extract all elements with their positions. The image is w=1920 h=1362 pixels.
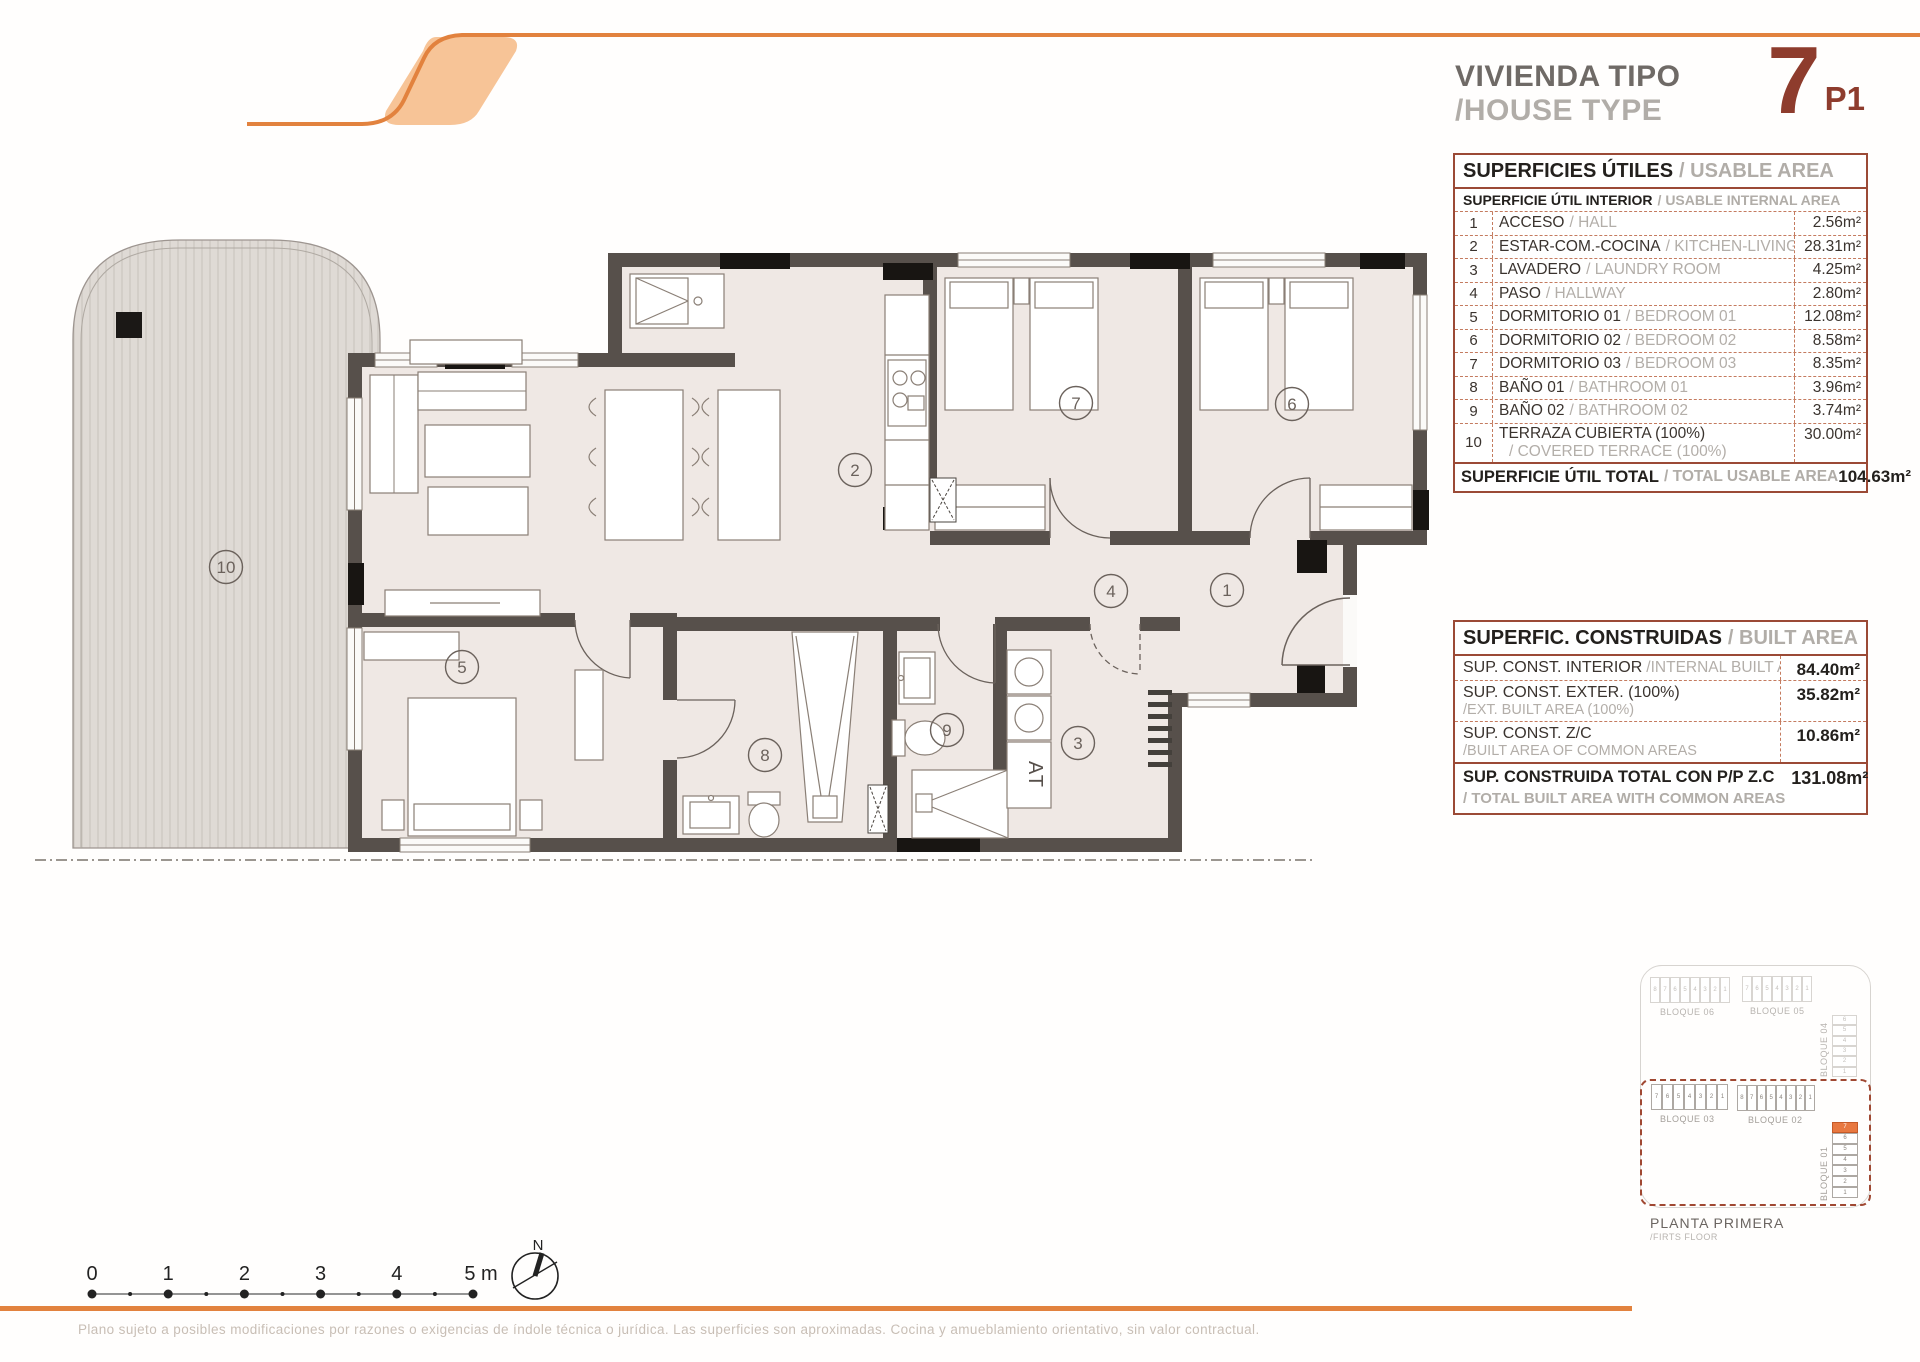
built-total-row: SUP. CONSTRUIDA TOTAL CON P/P Z.C / TOTA… bbox=[1455, 762, 1866, 813]
usable-row: 2ESTAR-COM.-COCINA/ KITCHEN-LIVING28.31m… bbox=[1455, 236, 1866, 260]
built-total-es: SUP. CONSTRUIDA TOTAL CON P/P Z.C bbox=[1463, 768, 1785, 787]
scale-tick-label: 1 bbox=[163, 1263, 174, 1285]
site-unit-cell: 4 bbox=[1690, 977, 1700, 1003]
site-unit-cell: 6 bbox=[1662, 1084, 1673, 1110]
site-block-label: BLOQUE 01 bbox=[1819, 1125, 1829, 1201]
site-unit-cell: 2 bbox=[1796, 1085, 1806, 1111]
room-name-en: / HALL bbox=[1569, 214, 1616, 232]
site-unit-cell: 3 bbox=[1700, 977, 1710, 1003]
site-block-label: BLOQUE 06 bbox=[1660, 1007, 1715, 1017]
site-unit-cell: 1 bbox=[1717, 1084, 1728, 1110]
built-total-value: 131.08m² bbox=[1791, 768, 1868, 807]
room-number-cell: 6 bbox=[1455, 330, 1493, 353]
type-number: 7 bbox=[1767, 42, 1820, 120]
title-es: VIVIENDA TIPO bbox=[1455, 60, 1680, 94]
built-name-es: SUP. CONST. EXTER. (100%) bbox=[1463, 684, 1772, 702]
site-unit-cell: 1 bbox=[1805, 1085, 1815, 1111]
room-name-es: DORMITORIO 03 bbox=[1499, 355, 1621, 373]
scale-minor-tick bbox=[128, 1292, 132, 1296]
room-name-es: BAÑO 01 bbox=[1499, 379, 1564, 397]
usable-title-es: SUPERFICIES ÚTILES bbox=[1463, 160, 1673, 183]
site-unit-cell: 3 bbox=[1832, 1046, 1857, 1056]
usable-row: 6DORMITORIO 02/ BEDROOM 028.58m² bbox=[1455, 330, 1866, 354]
built-row: SUP. CONST. INTERIOR/INTERNAL BUILT AREA… bbox=[1455, 656, 1866, 681]
room-area-cell: 28.31m² bbox=[1794, 236, 1866, 259]
site-unit-cell: 7 bbox=[1660, 977, 1670, 1003]
scale-major-tick bbox=[392, 1290, 401, 1299]
site-unit-cell: 3 bbox=[1832, 1165, 1858, 1176]
room-name-cell: PASO/ HALLWAY bbox=[1493, 283, 1794, 306]
room-circle-label: 3 bbox=[1073, 734, 1082, 753]
room-number-cell: 5 bbox=[1455, 306, 1493, 329]
room-name-cell: DORMITORIO 02/ BEDROOM 02 bbox=[1493, 330, 1794, 353]
room-name-cell: BAÑO 01/ BATHROOM 01 bbox=[1493, 377, 1794, 400]
room-number-cell: 10 bbox=[1455, 424, 1493, 462]
site-caption-es: PLANTA PRIMERA bbox=[1650, 1215, 1784, 1231]
site-unit-cell: 1 bbox=[1720, 977, 1730, 1003]
type-floor: P1 bbox=[1825, 80, 1865, 118]
room-number-cell: 1 bbox=[1455, 212, 1493, 235]
usable-row: 7DORMITORIO 03/ BEDROOM 038.35m² bbox=[1455, 353, 1866, 377]
at-closet-label: AT bbox=[1024, 761, 1046, 789]
built-row: SUP. CONST. Z/C/BUILT AREA OF COMMON ARE… bbox=[1455, 722, 1866, 762]
site-unit-cell: 3 bbox=[1786, 1085, 1796, 1111]
site-unit-cell: 3 bbox=[1782, 976, 1792, 1002]
scale-tick-label: 0 bbox=[86, 1263, 97, 1285]
site-unit-cell: 2 bbox=[1832, 1056, 1857, 1066]
usable-row: 5DORMITORIO 01/ BEDROOM 0112.08m² bbox=[1455, 306, 1866, 330]
site-block-b05: 7654321 bbox=[1742, 976, 1812, 1002]
built-name-cell: SUP. CONST. INTERIOR/INTERNAL BUILT AREA bbox=[1455, 656, 1780, 680]
scale-major-tick bbox=[240, 1290, 249, 1299]
plan-sheet: VIVIENDA TIPO /HOUSE TYPE 7 P1 SUPERFICI… bbox=[0, 0, 1920, 1362]
room-name-es: DORMITORIO 01 bbox=[1499, 308, 1621, 326]
site-unit-cell: 5 bbox=[1766, 1085, 1776, 1111]
room-name-cell: TERRAZA CUBIERTA (100%)/ COVERED TERRACE… bbox=[1493, 424, 1794, 462]
room-name-en: / HALLWAY bbox=[1546, 285, 1626, 303]
room-number-cell: 9 bbox=[1455, 400, 1493, 423]
room-name-en: / LAUNDRY ROOM bbox=[1586, 261, 1721, 279]
scale-major-tick bbox=[164, 1290, 173, 1299]
built-name-cell: SUP. CONST. EXTER. (100%)/EXT. BUILT ARE… bbox=[1455, 681, 1780, 721]
built-area-cell: 84.40m² bbox=[1780, 656, 1866, 680]
usable-row: 3LAVADERO/ LAUNDRY ROOM4.25m² bbox=[1455, 259, 1866, 283]
scale-tick-label: 3 bbox=[315, 1263, 326, 1285]
room-circle-label: 2 bbox=[850, 461, 859, 480]
built-total-en: / TOTAL BUILT AREA WITH COMMON AREAS bbox=[1463, 790, 1785, 807]
site-unit-cell: 3 bbox=[1695, 1084, 1706, 1110]
site-unit-cell: 7 bbox=[1747, 1085, 1757, 1111]
site-unit-cell: 6 bbox=[1757, 1085, 1767, 1111]
site-unit-cell: 4 bbox=[1684, 1084, 1695, 1110]
room-area-cell: 2.56m² bbox=[1794, 212, 1866, 235]
site-block-label: BLOQUE 04 bbox=[1819, 1015, 1829, 1077]
room-area-cell: 12.08m² bbox=[1794, 306, 1866, 329]
room-circle-label: 10 bbox=[217, 558, 236, 577]
room-name-cell: DORMITORIO 03/ BEDROOM 03 bbox=[1493, 353, 1794, 376]
site-unit-cell: 2 bbox=[1832, 1176, 1858, 1187]
logo-parallelogram bbox=[385, 37, 517, 125]
usable-area-table: SUPERFICIES ÚTILES / USABLE AREA SUPERFI… bbox=[1453, 153, 1868, 493]
terrace-deck bbox=[73, 240, 380, 848]
room-circle-label: 5 bbox=[457, 658, 466, 677]
site-unit-cell: 6 bbox=[1832, 1015, 1857, 1025]
built-name-es: SUP. CONST. Z/C bbox=[1463, 725, 1772, 743]
site-block-b06: 87654321 bbox=[1650, 977, 1730, 1003]
room-area-cell: 30.00m² bbox=[1794, 424, 1866, 462]
room-number-cell: 7 bbox=[1455, 353, 1493, 376]
room-name-cell: LAVADERO/ LAUNDRY ROOM bbox=[1493, 259, 1794, 282]
room-name-en: / KITCHEN-LIVING bbox=[1666, 238, 1794, 256]
site-block-label: BLOQUE 02 bbox=[1748, 1115, 1803, 1125]
room-number-cell: 4 bbox=[1455, 283, 1493, 306]
room-circle-label: 9 bbox=[942, 721, 951, 740]
room-circle-label: 8 bbox=[760, 746, 769, 765]
usable-total-en: / TOTAL USABLE AREA bbox=[1664, 468, 1838, 486]
room-name-en: / BATHROOM 02 bbox=[1569, 402, 1688, 420]
built-area-cell: 10.86m² bbox=[1780, 722, 1866, 762]
room-circle-label: 4 bbox=[1106, 582, 1115, 601]
bottom-accent-rule bbox=[0, 1306, 1632, 1311]
site-unit-cell: 7 bbox=[1742, 976, 1752, 1002]
scale-minor-tick bbox=[204, 1292, 208, 1296]
site-block-label: BLOQUE 03 bbox=[1660, 1114, 1715, 1124]
room-name-en: / BEDROOM 02 bbox=[1626, 332, 1736, 350]
built-title-en: / BUILT AREA bbox=[1728, 627, 1858, 650]
site-block-b02: 87654321 bbox=[1737, 1085, 1815, 1111]
site-unit-cell: 8 bbox=[1650, 977, 1660, 1003]
usable-total-value: 104.63m² bbox=[1838, 467, 1911, 487]
scale-tick-label: 5 m bbox=[464, 1263, 497, 1285]
built-area-cell: 35.82m² bbox=[1780, 681, 1866, 721]
usable-table-subheader: SUPERFICIE ÚTIL INTERIOR / USABLE INTERN… bbox=[1455, 189, 1866, 212]
site-unit-cell: 5 bbox=[1680, 977, 1690, 1003]
site-unit-cell: 2 bbox=[1706, 1084, 1717, 1110]
site-unit-cell: 5 bbox=[1832, 1025, 1857, 1035]
room-area-cell: 2.80m² bbox=[1794, 283, 1866, 306]
room-area-cell: 4.25m² bbox=[1794, 259, 1866, 282]
north-label: N bbox=[533, 1238, 544, 1254]
site-block-b03: 7654321 bbox=[1651, 1084, 1728, 1110]
usable-row: 1ACCESO/ HALL2.56m² bbox=[1455, 212, 1866, 236]
site-block-b01: 7654321 bbox=[1832, 1122, 1858, 1198]
built-name-en: /BUILT AREA OF COMMON AREAS bbox=[1463, 743, 1772, 759]
room-name-es: ACCESO bbox=[1499, 214, 1564, 232]
site-unit-cell: 4 bbox=[1776, 1085, 1786, 1111]
site-block-b04: 654321 bbox=[1832, 1015, 1857, 1077]
title-block: VIVIENDA TIPO /HOUSE TYPE 7 P1 bbox=[1455, 42, 1865, 128]
built-area-table: SUPERFIC. CONSTRUIDAS / BUILT AREA SUP. … bbox=[1453, 620, 1868, 815]
room-circle-label: 6 bbox=[1287, 395, 1296, 414]
terrace-column bbox=[116, 312, 142, 338]
room-number-cell: 3 bbox=[1455, 259, 1493, 282]
built-table-rows: SUP. CONST. INTERIOR/INTERNAL BUILT AREA… bbox=[1455, 656, 1866, 762]
site-unit-cell: 6 bbox=[1670, 977, 1680, 1003]
site-unit-cell: 1 bbox=[1802, 976, 1812, 1002]
scale-minor-tick bbox=[433, 1292, 437, 1296]
room-name-es: PASO bbox=[1499, 285, 1541, 303]
disclaimer-text: Plano sujeto a posibles modificaciones p… bbox=[78, 1322, 1278, 1337]
type-code: 7 P1 bbox=[1767, 42, 1865, 120]
room-number-cell: 2 bbox=[1455, 236, 1493, 259]
site-unit-cell: 7 bbox=[1832, 1122, 1858, 1133]
site-unit-cell: 4 bbox=[1832, 1155, 1858, 1166]
site-unit-cell: 1 bbox=[1832, 1067, 1857, 1077]
scale-bar: 012345 m bbox=[70, 1248, 550, 1312]
built-name-inline: SUP. CONST. INTERIOR/INTERNAL BUILT AREA bbox=[1463, 659, 1772, 677]
scale-major-tick bbox=[316, 1290, 325, 1299]
scale-tick-label: 2 bbox=[239, 1263, 250, 1285]
north-arrow: N bbox=[502, 1238, 576, 1312]
built-title-es: SUPERFIC. CONSTRUIDAS bbox=[1463, 627, 1722, 650]
scale-minor-tick bbox=[281, 1292, 285, 1296]
usable-table-header: SUPERFICIES ÚTILES / USABLE AREA bbox=[1455, 155, 1866, 189]
room-name-en: / BEDROOM 01 bbox=[1626, 308, 1736, 326]
usable-row: 10TERRAZA CUBIERTA (100%)/ COVERED TERRA… bbox=[1455, 424, 1866, 462]
usable-title-en: / USABLE AREA bbox=[1679, 160, 1834, 183]
scale-minor-tick bbox=[357, 1292, 361, 1296]
room-number-cell: 8 bbox=[1455, 377, 1493, 400]
room-circle-label: 7 bbox=[1071, 394, 1080, 413]
site-unit-cell: 6 bbox=[1752, 976, 1762, 1002]
room-area-cell: 3.96m² bbox=[1794, 377, 1866, 400]
site-unit-cell: 4 bbox=[1772, 976, 1782, 1002]
room-name-en: / BEDROOM 03 bbox=[1626, 355, 1736, 373]
usable-subtitle-en: / USABLE INTERNAL AREA bbox=[1658, 192, 1841, 208]
site-unit-cell: 6 bbox=[1832, 1133, 1858, 1144]
site-unit-cell: 5 bbox=[1673, 1084, 1684, 1110]
usable-row: 8BAÑO 01/ BATHROOM 013.96m² bbox=[1455, 377, 1866, 401]
room-circle-label: 1 bbox=[1222, 581, 1231, 600]
site-unit-cell: 2 bbox=[1792, 976, 1802, 1002]
usable-total-row: SUPERFICIE ÚTIL TOTAL / TOTAL USABLE ARE… bbox=[1455, 462, 1866, 491]
room-name-en: / COVERED TERRACE (100%) bbox=[1509, 443, 1727, 461]
site-unit-cell: 8 bbox=[1737, 1085, 1747, 1111]
usable-total-es: SUPERFICIE ÚTIL TOTAL bbox=[1461, 468, 1659, 487]
usable-subtitle-es: SUPERFICIE ÚTIL INTERIOR bbox=[1463, 192, 1653, 208]
room-name-es: LAVADERO bbox=[1499, 261, 1581, 279]
built-name-en: /EXT. BUILT AREA (100%) bbox=[1463, 702, 1772, 718]
site-unit-cell: 2 bbox=[1710, 977, 1720, 1003]
site-caption-en: /FIRTS FLOOR bbox=[1650, 1232, 1718, 1242]
room-area-cell: 3.74m² bbox=[1794, 400, 1866, 423]
built-name-es: SUP. CONST. INTERIOR bbox=[1463, 659, 1642, 677]
scale-tick-label: 4 bbox=[391, 1263, 402, 1285]
house-type-title: VIVIENDA TIPO /HOUSE TYPE bbox=[1455, 60, 1680, 128]
room-name-cell: ACCESO/ HALL bbox=[1493, 212, 1794, 235]
room-name-cell: BAÑO 02/ BATHROOM 02 bbox=[1493, 400, 1794, 423]
built-name-en: /INTERNAL BUILT AREA bbox=[1646, 659, 1780, 677]
room-name-es: BAÑO 02 bbox=[1499, 402, 1564, 420]
floor-plan-drawing: AT 12345678910 bbox=[30, 200, 1430, 872]
site-block-label: BLOQUE 05 bbox=[1750, 1006, 1805, 1016]
site-unit-cell: 4 bbox=[1832, 1036, 1857, 1046]
room-name-cell: DORMITORIO 01/ BEDROOM 01 bbox=[1493, 306, 1794, 329]
usable-row: 4PASO/ HALLWAY2.80m² bbox=[1455, 283, 1866, 307]
room-name-es: TERRAZA CUBIERTA (100%) bbox=[1499, 425, 1705, 443]
title-en: /HOUSE TYPE bbox=[1455, 94, 1680, 128]
room-area-cell: 8.58m² bbox=[1794, 330, 1866, 353]
room-name-cell: ESTAR-COM.-COCINA/ KITCHEN-LIVING bbox=[1493, 236, 1794, 259]
room-name-es: DORMITORIO 02 bbox=[1499, 332, 1621, 350]
site-unit-cell: 7 bbox=[1651, 1084, 1662, 1110]
scale-major-tick bbox=[469, 1290, 478, 1299]
site-unit-cell: 5 bbox=[1762, 976, 1772, 1002]
site-unit-cell: 5 bbox=[1832, 1144, 1858, 1155]
built-table-header: SUPERFIC. CONSTRUIDAS / BUILT AREA bbox=[1455, 622, 1866, 656]
site-key-plan: 87654321BLOQUE 067654321BLOQUE 05654321B… bbox=[1638, 963, 1873, 1253]
room-area-cell: 8.35m² bbox=[1794, 353, 1866, 376]
usable-row: 9BAÑO 02/ BATHROOM 023.74m² bbox=[1455, 400, 1866, 424]
room-name-en: / BATHROOM 01 bbox=[1569, 379, 1688, 397]
room-name-es: ESTAR-COM.-COCINA bbox=[1499, 238, 1661, 256]
scale-major-tick bbox=[88, 1290, 97, 1299]
site-unit-cell: 1 bbox=[1832, 1187, 1858, 1198]
usable-table-rows: 1ACCESO/ HALL2.56m²2ESTAR-COM.-COCINA/ K… bbox=[1455, 212, 1866, 462]
built-row: SUP. CONST. EXTER. (100%)/EXT. BUILT ARE… bbox=[1455, 681, 1866, 722]
built-name-cell: SUP. CONST. Z/C/BUILT AREA OF COMMON ARE… bbox=[1455, 722, 1780, 762]
